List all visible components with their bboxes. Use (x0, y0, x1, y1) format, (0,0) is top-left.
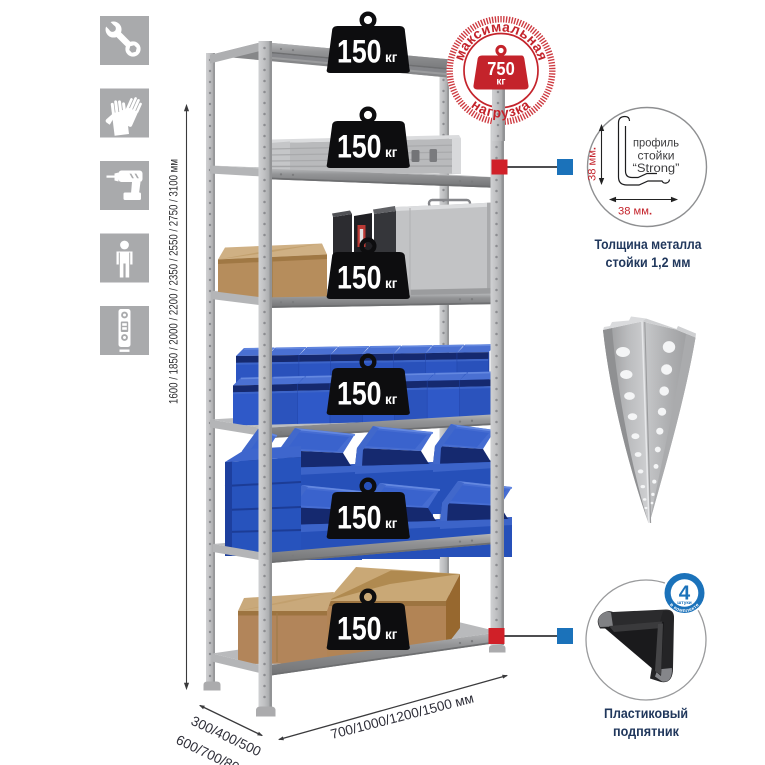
svg-text:38 мм.: 38 мм. (587, 147, 599, 181)
svg-text:38 мм.: 38 мм. (618, 206, 652, 218)
svg-text:подпятник: подпятник (613, 724, 680, 740)
svg-text:кг: кг (496, 77, 505, 88)
svg-text:150: 150 (337, 260, 382, 296)
svg-text:Толщина металла: Толщина металла (595, 237, 702, 252)
svg-text:150: 150 (337, 611, 382, 647)
svg-text:“Strong”: “Strong” (633, 161, 680, 175)
svg-text:профиль: профиль (633, 136, 679, 150)
svg-text:150: 150 (337, 376, 382, 412)
svg-text:1600 / 1850 / 2000 / 2200 / 23: 1600 / 1850 / 2000 / 2200 / 2350 / 2550 … (168, 159, 181, 404)
svg-text:150: 150 (337, 500, 382, 536)
svg-text:кг: кг (385, 276, 398, 291)
svg-text:кг: кг (385, 50, 398, 65)
svg-text:Пластиковый: Пластиковый (604, 706, 688, 722)
svg-text:150: 150 (337, 129, 382, 165)
svg-text:150: 150 (337, 34, 382, 70)
svg-text:штуки: штуки (677, 601, 692, 606)
svg-text:кг: кг (385, 516, 398, 531)
svg-text:кг: кг (385, 145, 398, 160)
svg-text:кг: кг (385, 627, 398, 642)
svg-text:стойки 1,2 мм: стойки 1,2 мм (606, 255, 691, 270)
svg-text:кг: кг (385, 392, 398, 407)
